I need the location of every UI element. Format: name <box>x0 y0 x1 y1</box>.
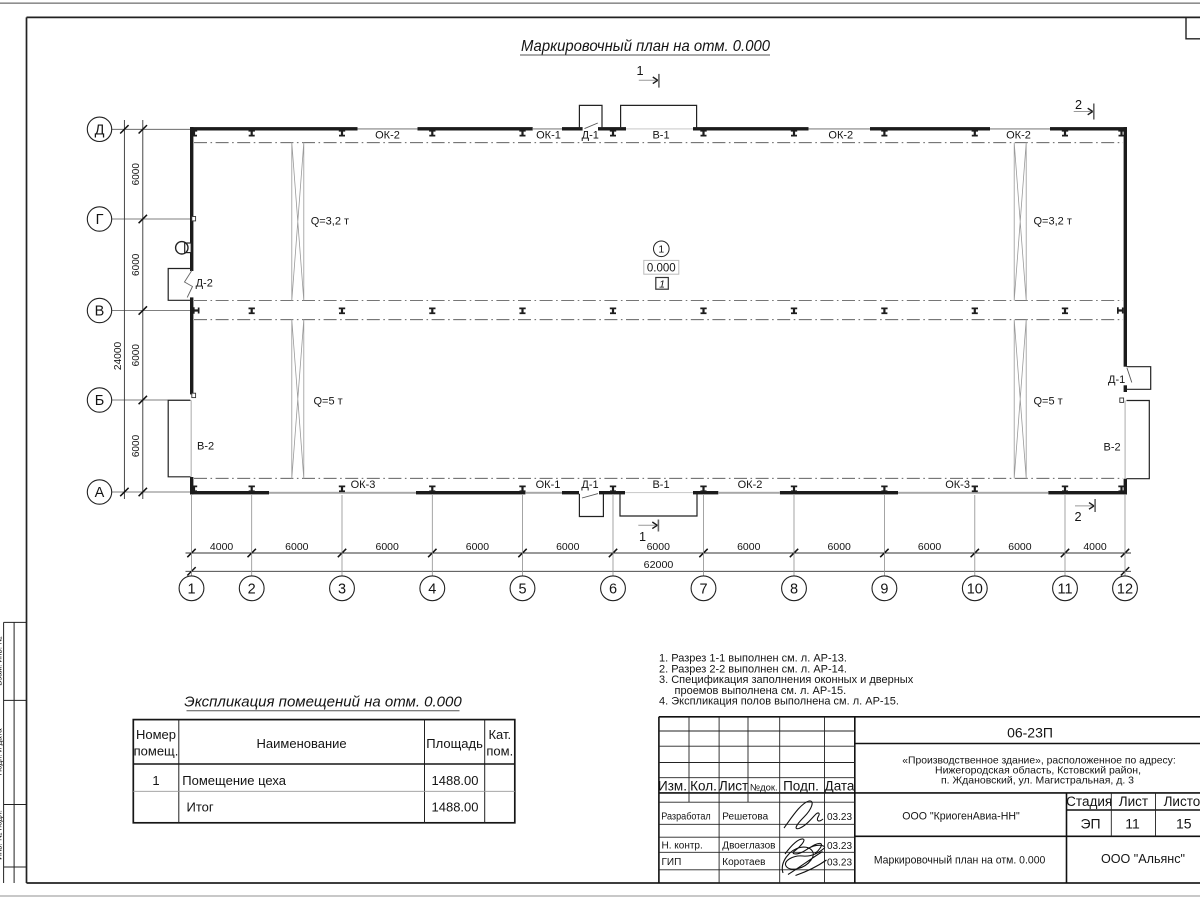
svg-text:4: 4 <box>428 582 436 598</box>
svg-text:Маркировочный план на отм. 0.0: Маркировочный план на отм. 0.000 <box>874 854 1046 866</box>
svg-text:12: 12 <box>1117 582 1133 598</box>
svg-text:ОК-2: ОК-2 <box>738 479 763 491</box>
svg-text:4000: 4000 <box>1083 542 1107 553</box>
svg-text:1: 1 <box>636 64 643 78</box>
svg-text:6000: 6000 <box>131 253 142 276</box>
svg-text:9: 9 <box>880 582 888 598</box>
svg-text:6: 6 <box>609 582 617 598</box>
svg-text:1: 1 <box>639 530 646 544</box>
svg-text:4000: 4000 <box>210 542 234 553</box>
svg-text:ГИП: ГИП <box>662 857 682 868</box>
svg-text:Маркировочный план на отм. 0.0: Маркировочный план на отм. 0.000 <box>521 38 770 55</box>
svg-text:Q=5 т: Q=5 т <box>314 396 343 408</box>
svg-text:Г: Г <box>96 212 104 228</box>
svg-text:В-2: В-2 <box>1104 442 1121 454</box>
svg-text:Q=3,2 т: Q=3,2 т <box>1034 216 1072 228</box>
svg-text:Дата: Дата <box>825 778 855 793</box>
svg-text:6000: 6000 <box>1008 542 1032 553</box>
svg-text:Д-1: Д-1 <box>581 479 598 491</box>
svg-text:ОК-2: ОК-2 <box>828 129 853 141</box>
svg-text:Разработал: Разработал <box>661 811 711 823</box>
svg-text:03.23: 03.23 <box>827 841 852 852</box>
svg-text:ООО "КриогенАвиа-НН": ООО "КриогенАвиа-НН" <box>902 810 1019 822</box>
svg-text:помещ.: помещ. <box>134 743 179 758</box>
svg-text:Подп.: Подп. <box>783 778 819 793</box>
svg-text:Кол.: Кол. <box>690 778 717 793</box>
svg-text:3: 3 <box>338 582 346 598</box>
svg-text:В-1: В-1 <box>652 129 669 141</box>
svg-text:Лист: Лист <box>719 778 748 793</box>
svg-text:пом.: пом. <box>486 743 513 758</box>
svg-text:10: 10 <box>967 582 983 598</box>
svg-text:6000: 6000 <box>918 542 942 553</box>
svg-text:1488.00: 1488.00 <box>432 773 479 788</box>
svg-text:5: 5 <box>518 582 526 598</box>
svg-text:Коротаев: Коротаев <box>722 857 765 868</box>
svg-text:Кат.: Кат. <box>488 727 511 742</box>
svg-text:Номер: Номер <box>136 727 176 742</box>
svg-text:ОК-3: ОК-3 <box>351 479 376 491</box>
svg-text:6000: 6000 <box>647 542 671 553</box>
svg-text:1488.00: 1488.00 <box>432 799 479 814</box>
svg-text:0.000: 0.000 <box>647 262 676 274</box>
svg-text:2: 2 <box>1075 98 1082 112</box>
svg-text:В: В <box>95 304 105 320</box>
svg-text:1: 1 <box>658 244 664 256</box>
svg-text:ЭП: ЭП <box>1080 815 1100 831</box>
svg-text:Наименование: Наименование <box>257 736 347 751</box>
svg-text:03.23: 03.23 <box>827 812 852 823</box>
svg-text:ООО "Альянс": ООО "Альянс" <box>1101 851 1185 866</box>
svg-text:Д: Д <box>95 123 105 139</box>
svg-text:А: А <box>95 485 105 501</box>
svg-text:6000: 6000 <box>376 542 400 553</box>
svg-text:24000: 24000 <box>113 341 124 370</box>
svg-text:Изм.: Изм. <box>658 778 687 793</box>
svg-text:6000: 6000 <box>466 542 490 553</box>
svg-text:Листов: Листов <box>1164 794 1200 809</box>
svg-text:Стадия: Стадия <box>1066 794 1112 809</box>
svg-text:03.23: 03.23 <box>827 858 852 869</box>
svg-text:6000: 6000 <box>131 163 142 186</box>
svg-text:ОК-1: ОК-1 <box>536 479 561 491</box>
svg-text:62000: 62000 <box>644 560 674 571</box>
svg-text:Решетова: Решетова <box>722 812 768 823</box>
svg-text:15: 15 <box>1176 815 1192 831</box>
svg-text:Q=3,2 т: Q=3,2 т <box>311 216 349 228</box>
svg-text:ОК-1: ОК-1 <box>536 129 561 141</box>
svg-text:Экспликация помещений на отм.: Экспликация помещений на отм. 0.000 <box>184 694 462 711</box>
svg-text:Инв. № подл.: Инв. № подл. <box>0 810 4 860</box>
svg-text:1: 1 <box>152 773 159 788</box>
svg-text:Д-1: Д-1 <box>1108 374 1125 386</box>
svg-text:8: 8 <box>790 582 798 598</box>
svg-text:Б: Б <box>95 393 105 409</box>
svg-text:6000: 6000 <box>737 542 761 553</box>
svg-text:2: 2 <box>248 582 256 598</box>
svg-text:Взам. инв. №: Взам. инв. № <box>0 636 4 686</box>
svg-text:№док.: №док. <box>750 782 778 793</box>
svg-text:Итог: Итог <box>187 799 214 814</box>
svg-text:В-2: В-2 <box>197 441 214 453</box>
svg-text:11: 11 <box>1057 582 1072 598</box>
svg-text:6000: 6000 <box>131 434 142 457</box>
svg-text:ОК-3: ОК-3 <box>945 479 970 491</box>
svg-text:6000: 6000 <box>285 542 309 553</box>
svg-text:Н. контр.: Н. контр. <box>662 840 703 851</box>
svg-text:Д-2: Д-2 <box>196 278 213 290</box>
svg-text:Двоеглазов: Двоеглазов <box>722 840 775 851</box>
svg-text:Д-1: Д-1 <box>582 129 599 141</box>
svg-text:ОК-2: ОК-2 <box>375 129 400 141</box>
svg-text:ОК-2: ОК-2 <box>1006 129 1031 141</box>
svg-text:06-23П: 06-23П <box>1007 724 1053 740</box>
svg-text:Q=5 т: Q=5 т <box>1034 396 1063 408</box>
svg-text:Площадь: Площадь <box>426 736 483 751</box>
svg-text:6000: 6000 <box>556 542 580 553</box>
svg-text:6000: 6000 <box>131 344 142 367</box>
svg-text:1: 1 <box>187 582 195 598</box>
svg-text:4. Экспликация полов выполнена: 4. Экспликация полов выполнена см. л. АР… <box>659 696 899 708</box>
svg-text:6000: 6000 <box>828 542 852 553</box>
svg-text:Помещение цеха: Помещение цеха <box>182 773 286 788</box>
svg-text:Лист: Лист <box>1119 794 1148 809</box>
svg-text:п. Ждановский, ул. Магистральн: п. Ждановский, ул. Магистральная, д. 3 <box>941 775 1134 787</box>
svg-text:11: 11 <box>1125 815 1140 831</box>
svg-text:1: 1 <box>659 278 665 290</box>
svg-text:В-1: В-1 <box>652 479 669 491</box>
svg-text:7: 7 <box>699 582 707 598</box>
svg-text:Подп. и дата: Подп. и дата <box>0 728 4 776</box>
svg-text:2: 2 <box>1074 510 1081 524</box>
